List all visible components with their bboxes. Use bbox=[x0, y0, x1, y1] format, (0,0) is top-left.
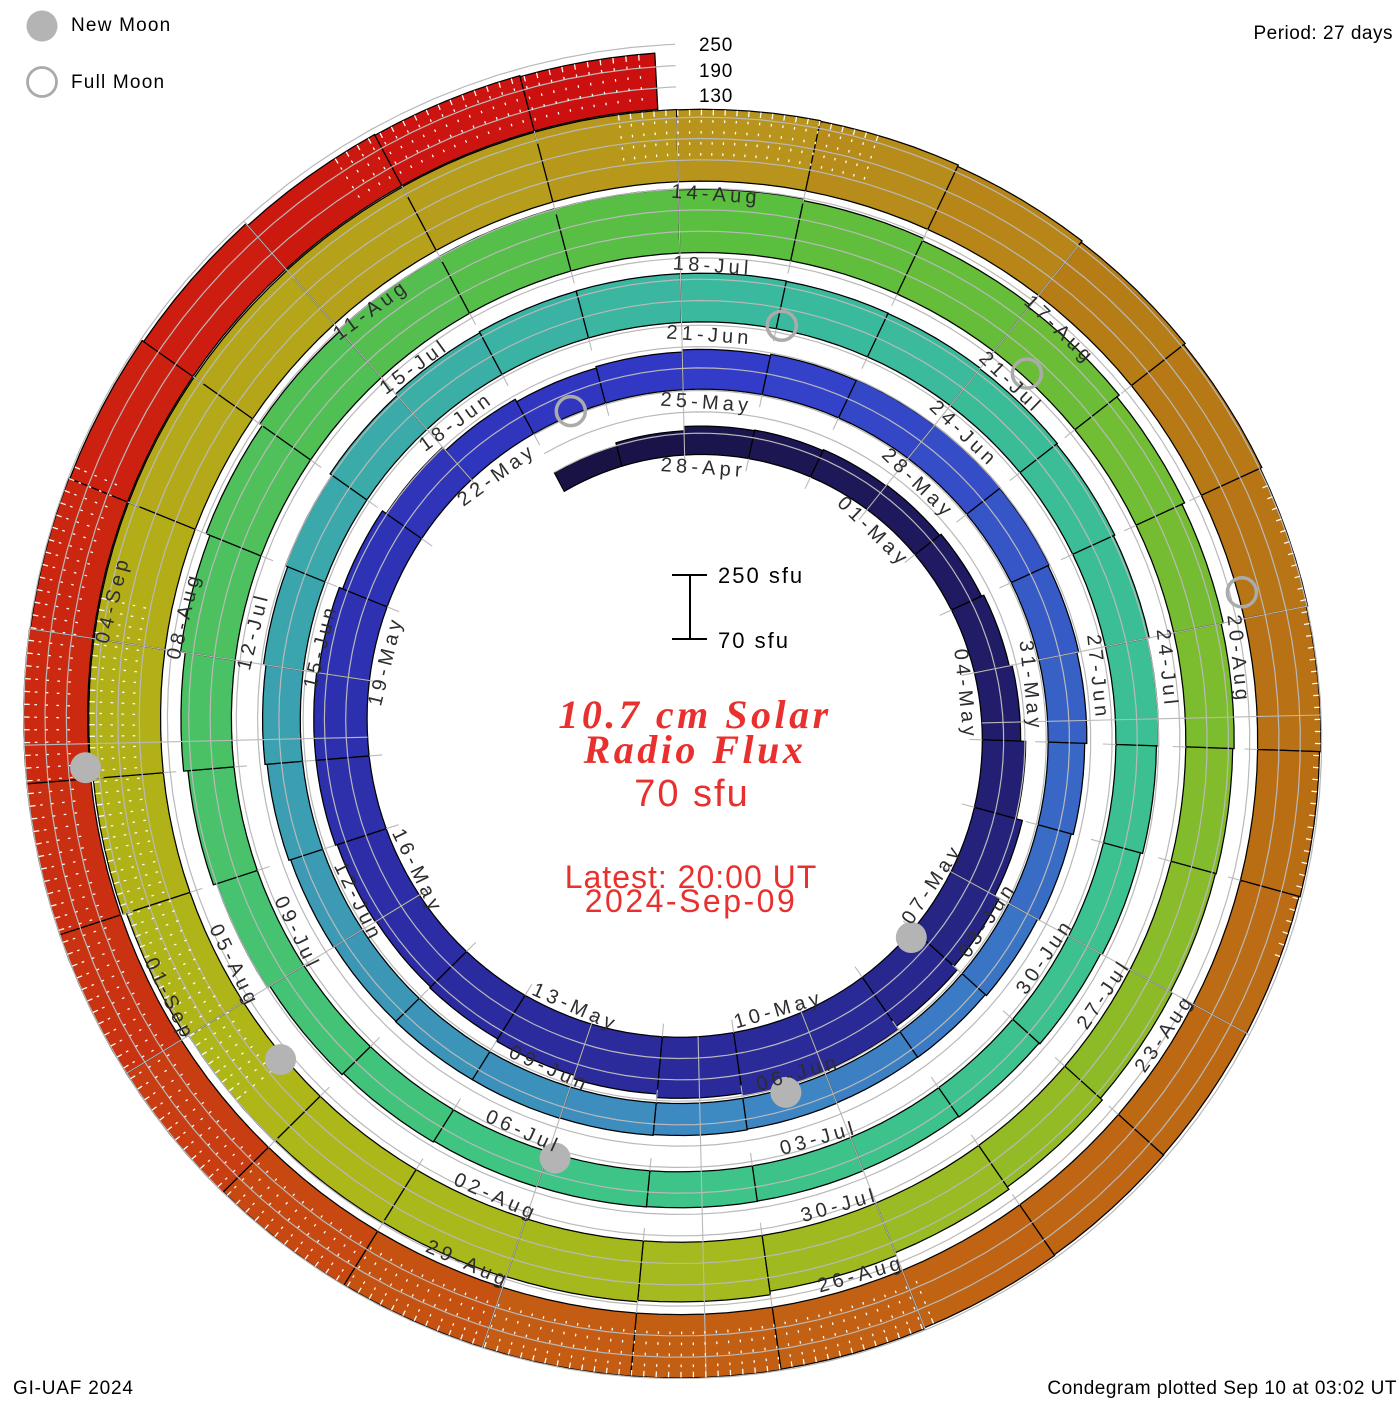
svg-text:Period: 27 days: Period: 27 days bbox=[1253, 23, 1393, 44]
svg-text:70 sfu: 70 sfu bbox=[718, 628, 790, 653]
svg-text:130: 130 bbox=[699, 86, 733, 107]
svg-text:70 sfu: 70 sfu bbox=[634, 773, 750, 815]
svg-text:2024-Sep-09: 2024-Sep-09 bbox=[585, 883, 798, 919]
svg-text:250: 250 bbox=[699, 35, 733, 56]
svg-text:Radio Flux: Radio Flux bbox=[583, 727, 807, 772]
svg-text:190: 190 bbox=[699, 61, 733, 82]
svg-text:New Moon: New Moon bbox=[71, 15, 171, 36]
svg-text:GI-UAF 2024: GI-UAF 2024 bbox=[13, 1378, 134, 1399]
svg-text:250 sfu: 250 sfu bbox=[718, 563, 804, 588]
svg-text:Full Moon: Full Moon bbox=[71, 72, 165, 93]
svg-text:Condegram plotted Sep 10 at 03: Condegram plotted Sep 10 at 03:02 UT bbox=[1047, 1378, 1397, 1399]
